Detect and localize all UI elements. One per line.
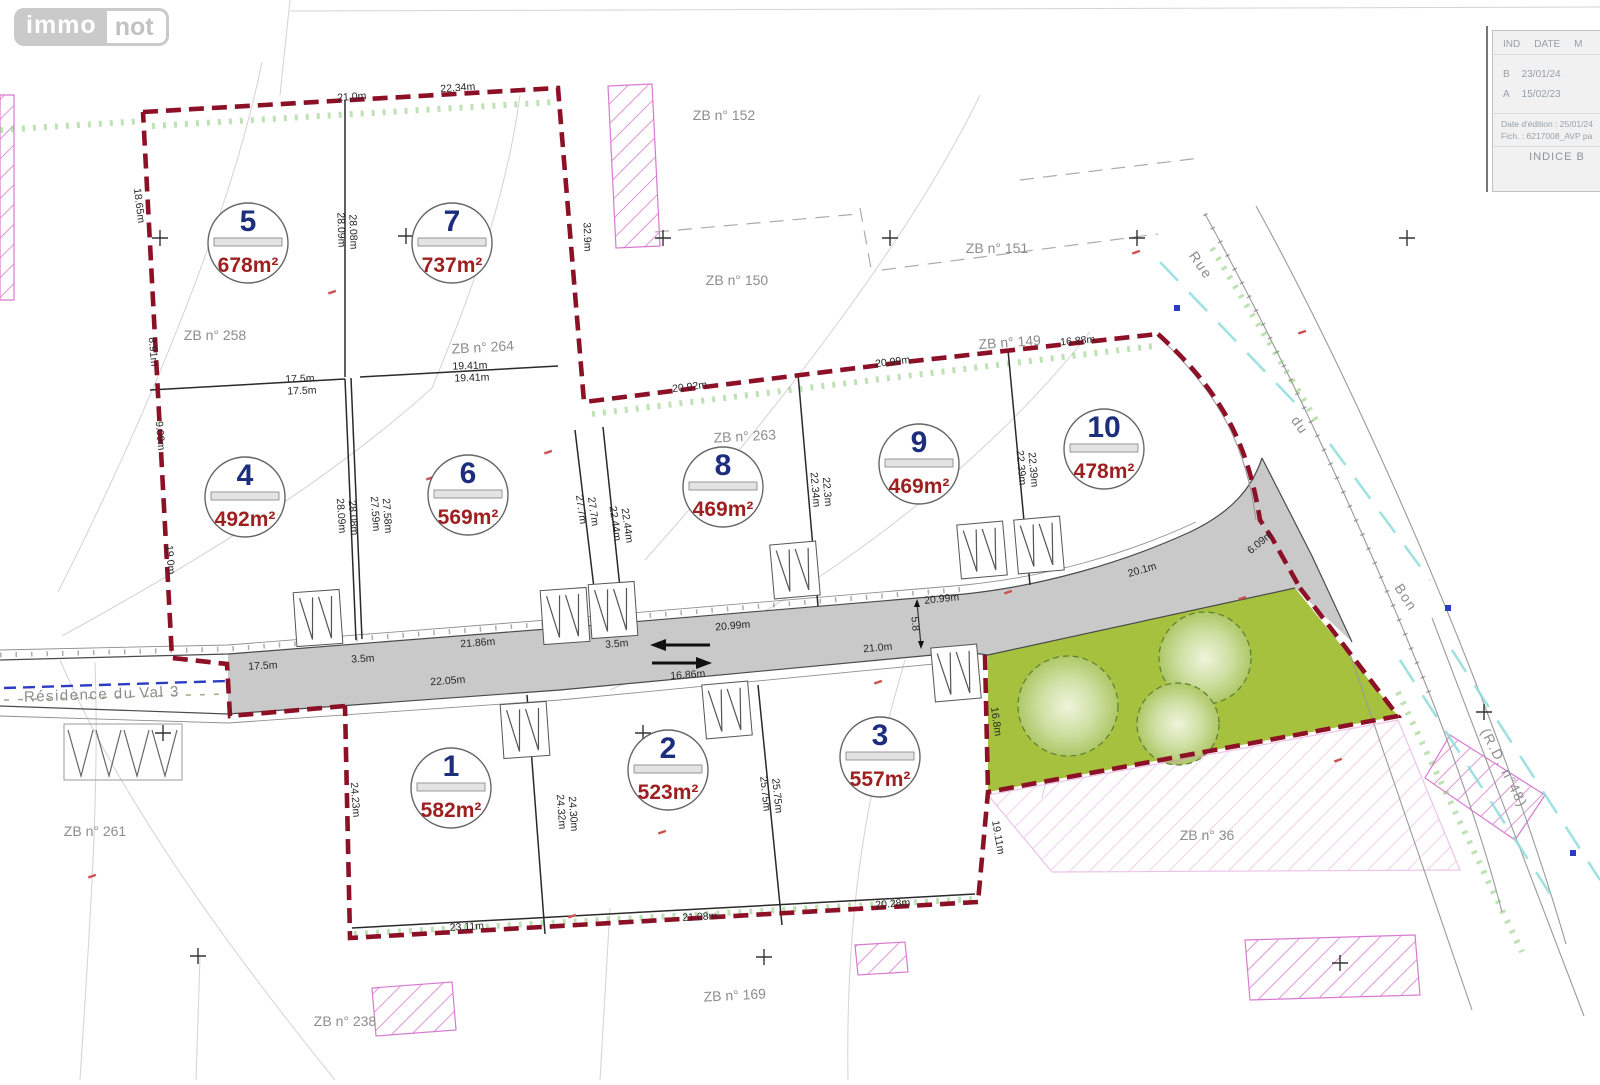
tree-icon xyxy=(1018,656,1118,756)
rev-ind: A xyxy=(1503,89,1510,100)
lot-divider xyxy=(211,492,279,500)
lot-marker: 1582m² xyxy=(411,748,491,828)
site-plan-page: 21.0m22.34m18.65m8.91m9.09m19.0m28.09m28… xyxy=(0,0,1600,1080)
lot-divider xyxy=(418,238,486,246)
lot-divider xyxy=(885,459,953,467)
lot-number: 5 xyxy=(240,205,257,238)
lot-marker: 3557m² xyxy=(840,717,920,797)
parcel-label: ZB n° 150 xyxy=(706,272,769,288)
rev-ind: B xyxy=(1503,69,1510,80)
indice-label: INDICE B xyxy=(1493,146,1600,163)
lot-marker: 10478m² xyxy=(1064,409,1144,489)
dimension-label: 19.0m xyxy=(163,545,178,575)
title-block-header: IND DATE M xyxy=(1493,31,1600,55)
logo-not: not xyxy=(107,8,169,46)
lot-marker: 9469m² xyxy=(879,424,959,504)
driveway-symbol xyxy=(957,521,1008,579)
dimension-label: 9.09m xyxy=(153,421,168,451)
col-m: M xyxy=(1574,39,1582,50)
col-date: DATE xyxy=(1534,39,1560,50)
revision-row: B 23/01/24 xyxy=(1503,69,1600,80)
dimension-label: 8.91m xyxy=(146,337,161,367)
survey-cross-icon xyxy=(152,230,168,246)
parcel-label: ZB n° 169 xyxy=(703,985,766,1004)
driveway-symbol xyxy=(702,681,753,739)
lot-number: 4 xyxy=(237,459,254,492)
survey-cross-icon xyxy=(155,725,171,741)
lot-area: 678m² xyxy=(218,254,279,277)
dimension-label: 16.86m xyxy=(670,668,706,682)
lot-area: 469m² xyxy=(889,475,950,498)
street-label: Rue xyxy=(1186,248,1216,282)
parcel-label: ZB n° 36 xyxy=(1180,827,1235,843)
dimension-label: 22.3m xyxy=(820,477,835,507)
lot-number: 3 xyxy=(872,719,889,752)
lot-divider xyxy=(434,490,502,498)
contour-lines xyxy=(58,0,1600,1080)
dimension-label: 24.23m xyxy=(348,782,362,818)
lot-marker: 7737m² xyxy=(412,203,492,283)
dimension-label: 21.86m xyxy=(460,636,496,650)
dimension-label: 3.5m xyxy=(605,637,629,651)
driveway-symbol xyxy=(293,589,343,646)
parcel-label: ZB n° 264 xyxy=(451,337,514,356)
lot-divider xyxy=(689,482,757,490)
survey-cross-icon xyxy=(1399,230,1415,246)
parcel-label: ZB n° 238 xyxy=(314,1013,377,1029)
plan-svg: 21.0m22.34m18.65m8.91m9.09m19.0m28.09m28… xyxy=(0,0,1600,1080)
spot-elevation-mark xyxy=(1132,250,1140,255)
dimension-label: 21.08m xyxy=(682,910,718,924)
dimension-label: 20.99m xyxy=(875,354,911,370)
title-block-border xyxy=(1486,26,1488,192)
lot-number: 1 xyxy=(443,750,460,783)
driveway-symbol xyxy=(588,581,638,638)
spot-elevation-mark xyxy=(568,914,576,919)
dimension-label: 5.8 xyxy=(908,616,921,632)
spot-elevation-mark xyxy=(328,290,336,295)
dimension-label: 23.11m xyxy=(449,920,484,934)
lot-area: 492m² xyxy=(215,508,276,531)
lot-marker: 5678m² xyxy=(208,203,288,283)
lot-marker: 4492m² xyxy=(205,457,285,537)
driveway-symbol xyxy=(540,587,590,644)
dimension-label: 24.30m xyxy=(566,796,580,832)
street-label: Bon xyxy=(1391,581,1420,614)
spot-elevation-mark xyxy=(544,450,552,455)
dimension-label: 22.34m xyxy=(440,81,476,95)
dimension-label: 17.5m xyxy=(285,372,315,385)
lot-divider xyxy=(1070,444,1138,452)
dimension-label: 19.41m xyxy=(452,359,488,372)
dimension-label: 19.41m xyxy=(454,371,490,384)
title-block: IND DATE M B 23/01/24 A 15/02/23 Date d'… xyxy=(1492,30,1600,192)
lot-area: 582m² xyxy=(421,799,482,822)
col-ind: IND xyxy=(1503,39,1520,50)
dimension-label: 21.0m xyxy=(337,90,367,104)
survey-cross-icon xyxy=(1129,230,1145,246)
logo-immo: immo xyxy=(14,8,107,46)
lot-marker: 6569m² xyxy=(428,455,508,535)
driveway-symbol xyxy=(1014,516,1065,574)
dimension-label: 16.88m xyxy=(1060,333,1096,348)
lot-divider xyxy=(846,752,914,760)
dimension-label: 28.09m xyxy=(334,212,347,248)
dimension-label: 18.65m xyxy=(131,188,147,224)
driveway-symbol xyxy=(770,541,821,599)
parcel-label: ZB n° 263 xyxy=(713,426,776,445)
parcel-label: ZB n° 261 xyxy=(64,823,127,839)
cadastral-dashed-lines xyxy=(655,158,1200,274)
parcel-label: ZB n° 151 xyxy=(966,240,1029,256)
lot-number: 8 xyxy=(715,449,732,482)
utility-marker-icon xyxy=(1570,850,1576,856)
lot-area: 478m² xyxy=(1074,460,1135,483)
dimension-label: 22.05m xyxy=(430,674,466,688)
utility-marker-icon xyxy=(1174,305,1180,311)
survey-cross-icon xyxy=(882,230,898,246)
lot-divider xyxy=(634,765,702,773)
lot-area: 569m² xyxy=(438,506,499,529)
lot-area: 557m² xyxy=(850,768,911,791)
survey-cross-icon xyxy=(756,949,772,965)
spot-elevation-mark xyxy=(658,830,666,835)
dimension-label: 20.28m xyxy=(875,897,911,911)
dimension-label: 21.0m xyxy=(863,641,893,656)
edition-date: Date d'édition : 25/01/24 xyxy=(1501,118,1600,130)
lot-marker: 8469m² xyxy=(683,447,763,527)
lot-area: 737m² xyxy=(422,254,483,277)
dimension-label: 17.5m xyxy=(287,384,317,397)
revision-row: A 15/02/23 xyxy=(1503,89,1600,100)
dimension-label: 32.9m xyxy=(580,222,593,252)
dimension-label: 28.08m xyxy=(346,500,360,536)
immonot-logo: immo not xyxy=(14,8,169,46)
utility-marker-icon xyxy=(1445,605,1451,611)
dimension-label: 28.08m xyxy=(346,214,359,250)
lot-divider xyxy=(214,238,282,246)
lot-area: 523m² xyxy=(638,781,699,804)
spot-elevation-mark xyxy=(1298,330,1306,335)
lot-number: 6 xyxy=(460,457,477,490)
parcel-label: ZB n° 152 xyxy=(693,107,756,123)
lot-number: 7 xyxy=(444,205,461,238)
dimension-label: 17.5m xyxy=(248,659,278,673)
dimension-label: 20.92m xyxy=(672,379,708,395)
lot-number: 2 xyxy=(660,732,677,765)
rev-date: 23/01/24 xyxy=(1522,69,1561,80)
lot-marker: 2523m² xyxy=(628,730,708,810)
lot-area: 469m² xyxy=(693,498,754,521)
survey-cross-icon xyxy=(190,948,206,964)
dimension-label: 19.11m xyxy=(989,820,1007,856)
lot-divider xyxy=(417,783,485,791)
driveway-symbol xyxy=(500,701,550,758)
lot-number: 9 xyxy=(911,426,928,459)
spot-elevation-mark xyxy=(874,680,882,685)
file-name: Fich. : 6217008_AVP pa xyxy=(1501,130,1600,142)
dimension-label: 27.58m xyxy=(380,498,394,534)
lot-number: 10 xyxy=(1087,411,1120,444)
rev-date: 15/02/23 xyxy=(1522,89,1561,100)
parcel-label: ZB n° 258 xyxy=(184,327,247,343)
dimension-label: 3.5m xyxy=(351,652,375,665)
driveway-symbol xyxy=(931,644,982,702)
